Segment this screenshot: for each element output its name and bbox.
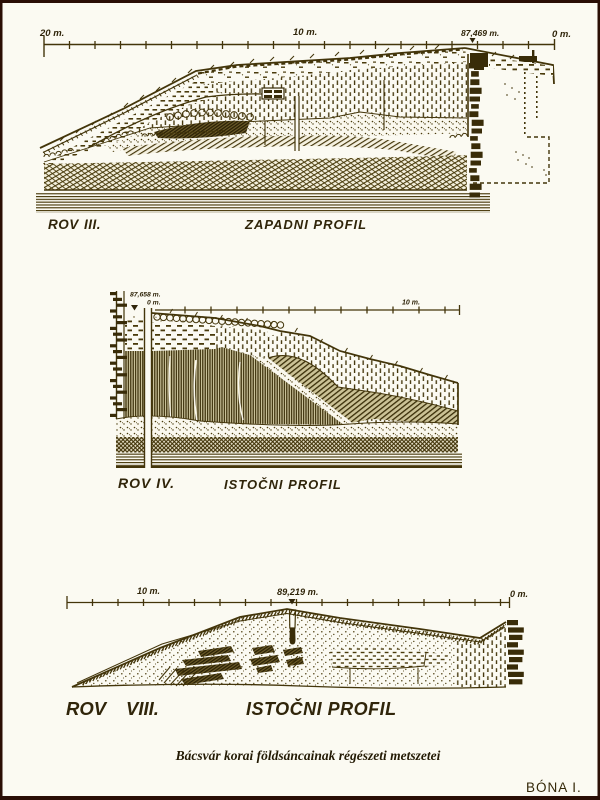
svg-text:10 m.: 10 m. xyxy=(137,586,160,596)
svg-text:10 m.: 10 m. xyxy=(293,27,317,38)
svg-text:ROV IV.: ROV IV. xyxy=(118,475,175,491)
svg-text:ISTOČNI PROFIL: ISTOČNI PROFIL xyxy=(246,698,397,719)
svg-text:III.: III. xyxy=(84,217,101,232)
svg-text:87,658 m.: 87,658 m. xyxy=(130,292,161,299)
svg-text:VIII.: VIII. xyxy=(126,698,159,719)
svg-text:ISTOČNI PROFIL: ISTOČNI PROFIL xyxy=(224,477,342,492)
svg-text:ROV: ROV xyxy=(48,217,79,232)
svg-text:10 m.: 10 m. xyxy=(402,300,420,307)
svg-text:0 m.: 0 m. xyxy=(510,589,528,599)
svg-text:87,469 m.: 87,469 m. xyxy=(461,28,499,38)
svg-text:0 m.: 0 m. xyxy=(552,29,571,40)
svg-text:89,219 m.: 89,219 m. xyxy=(277,587,318,597)
svg-text:ROV: ROV xyxy=(66,698,108,719)
svg-text:BÓNA I.: BÓNA I. xyxy=(526,780,582,795)
svg-text:ZAPADNI PROFIL: ZAPADNI PROFIL xyxy=(244,217,367,232)
svg-text:0 m.: 0 m. xyxy=(147,300,161,307)
svg-text:20 m.: 20 m. xyxy=(39,28,64,39)
svg-text:Bácsvár korai földsáncainak ré: Bácsvár korai földsáncainak régészeti me… xyxy=(175,748,441,763)
